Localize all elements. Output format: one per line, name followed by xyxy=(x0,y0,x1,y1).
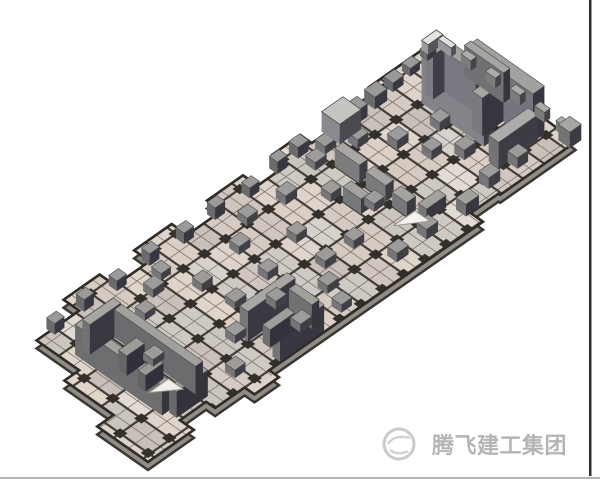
svg-text:腾飞建工集团: 腾飞建工集团 xyxy=(432,433,567,458)
